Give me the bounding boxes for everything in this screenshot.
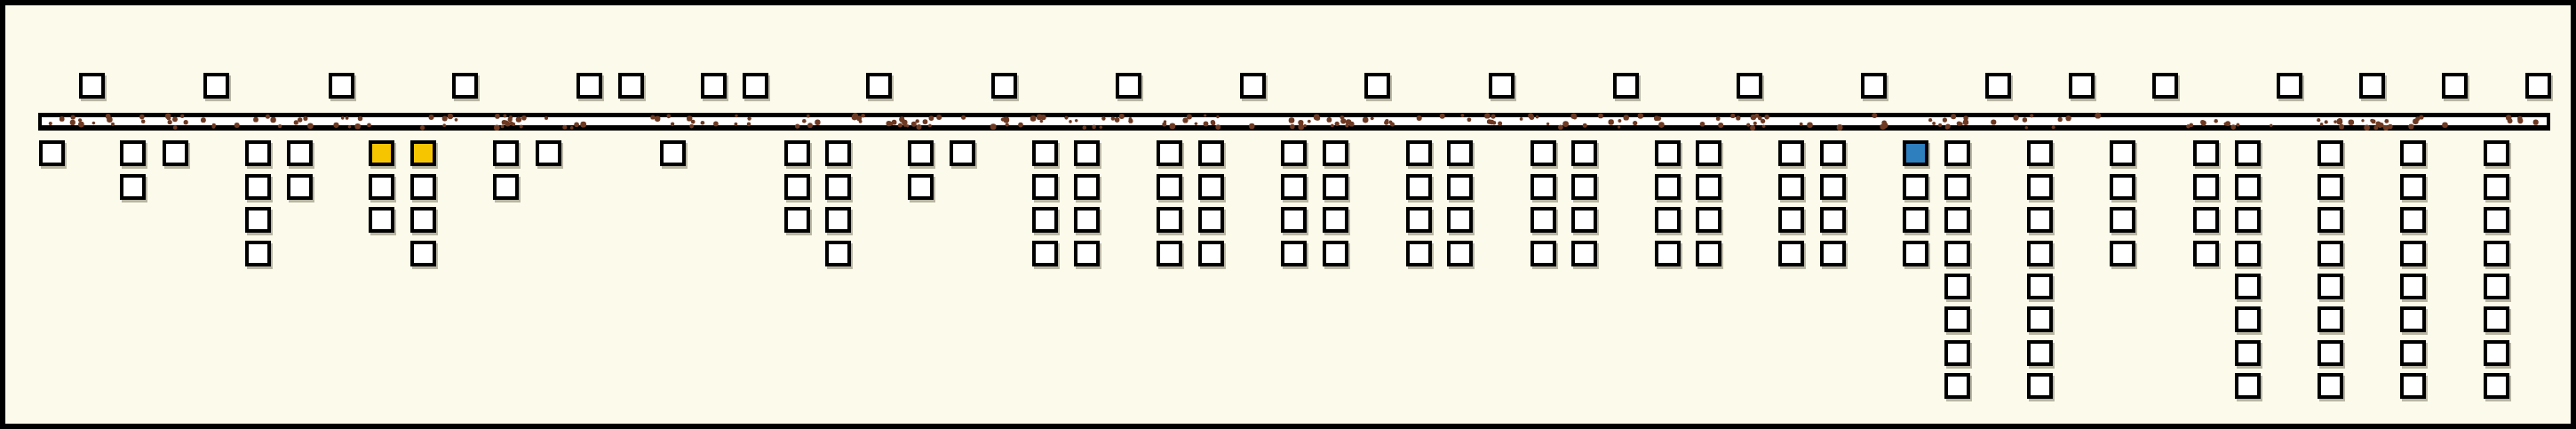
lower-box — [287, 174, 313, 200]
upper-box — [2525, 73, 2551, 99]
lower-box — [245, 207, 271, 233]
highlighted-yellow-box — [410, 140, 436, 166]
lower-box — [1903, 174, 1928, 200]
upper-box — [1240, 73, 1266, 99]
lower-box — [825, 140, 851, 166]
lower-box — [1074, 241, 1100, 266]
lower-box — [1198, 241, 1224, 266]
lower-box — [410, 241, 436, 266]
lower-box — [1944, 306, 1970, 332]
lower-box — [2400, 340, 2426, 366]
lower-box — [1655, 241, 1681, 266]
upper-box — [701, 73, 727, 99]
lower-box — [2027, 306, 2053, 332]
lower-box — [1406, 140, 1432, 166]
lower-box — [2027, 174, 2053, 200]
lower-box — [1655, 174, 1681, 200]
lower-box — [825, 241, 851, 266]
lower-box — [410, 174, 436, 200]
upper-box — [2069, 73, 2095, 99]
lower-box — [2318, 340, 2343, 366]
lower-box — [2235, 340, 2261, 366]
upper-box — [1364, 73, 1390, 99]
lower-box — [2484, 174, 2509, 200]
upper-box — [576, 73, 602, 99]
lower-box — [287, 140, 313, 166]
lower-box — [120, 140, 146, 166]
lower-box — [39, 140, 65, 166]
lower-box — [410, 207, 436, 233]
lower-box — [2318, 241, 2343, 266]
lower-box — [369, 207, 394, 233]
lower-box — [2484, 207, 2509, 233]
lower-box — [1944, 340, 1970, 366]
lower-box — [1696, 140, 1721, 166]
upper-box — [1489, 73, 1515, 99]
lower-box — [2027, 340, 2053, 366]
lower-box — [2235, 373, 2261, 399]
upper-box — [452, 73, 478, 99]
lower-box — [369, 174, 394, 200]
lower-box — [1820, 174, 1846, 200]
upper-box — [2277, 73, 2302, 99]
lower-box — [784, 207, 810, 233]
lower-box — [2027, 207, 2053, 233]
lower-box — [2235, 207, 2261, 233]
lower-box — [1074, 207, 1100, 233]
lower-box — [2110, 241, 2135, 266]
lower-box — [2484, 373, 2509, 399]
lower-box — [1944, 140, 1970, 166]
lower-box — [1157, 140, 1182, 166]
upper-box — [2152, 73, 2178, 99]
lower-box — [1323, 207, 1348, 233]
upper-box — [743, 73, 768, 99]
lower-box — [1944, 241, 1970, 266]
upper-box — [2359, 73, 2385, 99]
lower-box — [784, 140, 810, 166]
lower-box — [1696, 207, 1721, 233]
upper-box — [1737, 73, 1762, 99]
lower-box — [2193, 241, 2219, 266]
lower-box — [245, 174, 271, 200]
upper-box — [866, 73, 892, 99]
lower-box — [120, 174, 146, 200]
lower-box — [2235, 241, 2261, 266]
lower-box — [2235, 140, 2261, 166]
lower-box — [2193, 140, 2219, 166]
lower-box — [1655, 207, 1681, 233]
lower-box — [2235, 274, 2261, 299]
upper-box — [329, 73, 354, 99]
lower-box — [2110, 207, 2135, 233]
lower-box — [2110, 174, 2135, 200]
upper-box — [991, 73, 1017, 99]
lower-box — [2400, 207, 2426, 233]
lower-box — [660, 140, 686, 166]
highlighted-yellow-box — [369, 140, 394, 166]
lower-box — [493, 140, 519, 166]
lower-box — [536, 140, 561, 166]
lower-box — [1198, 140, 1224, 166]
lower-box — [825, 174, 851, 200]
lower-box — [1571, 174, 1597, 200]
lower-box — [825, 207, 851, 233]
lower-box — [2484, 340, 2509, 366]
lower-box — [2400, 241, 2426, 266]
lower-box — [1696, 241, 1721, 266]
figure-canvas — [0, 0, 2576, 429]
lower-box — [1778, 241, 1804, 266]
highlighted-blue-box — [1903, 140, 1928, 166]
lower-box — [1406, 174, 1432, 200]
lower-box — [2235, 306, 2261, 332]
lower-box — [1778, 140, 1804, 166]
lower-box — [2318, 207, 2343, 233]
lower-box — [2193, 207, 2219, 233]
lower-box — [245, 140, 271, 166]
lower-box — [2318, 306, 2343, 332]
lower-box — [2484, 140, 2509, 166]
upper-box — [618, 73, 644, 99]
upper-box — [1861, 73, 1887, 99]
lower-box — [1571, 140, 1597, 166]
lower-box — [1944, 373, 1970, 399]
lower-box — [908, 174, 934, 200]
lower-box — [2027, 241, 2053, 266]
lower-box — [1820, 140, 1846, 166]
lower-box — [1157, 241, 1182, 266]
lower-box — [493, 174, 519, 200]
lower-box — [1696, 174, 1721, 200]
lower-box — [1903, 207, 1928, 233]
lower-box — [1032, 207, 1058, 233]
lower-box — [1447, 174, 1473, 200]
lower-box — [2027, 373, 2053, 399]
lower-box — [1323, 241, 1348, 266]
lower-box — [1157, 174, 1182, 200]
lower-box — [2484, 274, 2509, 299]
lower-box — [1778, 174, 1804, 200]
lower-box — [1281, 174, 1307, 200]
lower-box — [1447, 241, 1473, 266]
upper-box — [79, 73, 105, 99]
lower-box — [1074, 174, 1100, 200]
lower-box — [1820, 207, 1846, 233]
lower-box — [1903, 241, 1928, 266]
lower-box — [2400, 174, 2426, 200]
lower-box — [1323, 140, 1348, 166]
lower-box — [1530, 174, 1556, 200]
lower-box — [1447, 140, 1473, 166]
lower-box — [1655, 140, 1681, 166]
lower-box — [2027, 274, 2053, 299]
lower-box — [1530, 140, 1556, 166]
lower-box — [1530, 241, 1556, 266]
upper-box — [1116, 73, 1141, 99]
upper-box — [2442, 73, 2468, 99]
lower-box — [1074, 140, 1100, 166]
upper-box — [1613, 73, 1639, 99]
lower-box — [1944, 207, 1970, 233]
lower-box — [2484, 306, 2509, 332]
lower-box — [2484, 241, 2509, 266]
lower-box — [1032, 174, 1058, 200]
lower-box — [2318, 373, 2343, 399]
lower-box — [950, 140, 975, 166]
upper-box — [203, 73, 229, 99]
lower-box — [784, 174, 810, 200]
lower-box — [1944, 174, 1970, 200]
lower-box — [1032, 140, 1058, 166]
lower-box — [2400, 274, 2426, 299]
lower-box — [1530, 207, 1556, 233]
lower-box — [2400, 140, 2426, 166]
lower-box — [2110, 140, 2135, 166]
lower-box — [2400, 306, 2426, 332]
lower-box — [1198, 207, 1224, 233]
lower-box — [1323, 174, 1348, 200]
lower-box — [2235, 174, 2261, 200]
lower-box — [1406, 207, 1432, 233]
lower-box — [1157, 207, 1182, 233]
lower-box — [1281, 207, 1307, 233]
lower-box — [2318, 174, 2343, 200]
lower-box — [1571, 241, 1597, 266]
lower-box — [2193, 174, 2219, 200]
lower-box — [1281, 241, 1307, 266]
lower-box — [1820, 241, 1846, 266]
lower-box — [908, 140, 934, 166]
lower-box — [163, 140, 188, 166]
lower-box — [1778, 207, 1804, 233]
upper-box — [1985, 73, 2011, 99]
lower-box — [1447, 207, 1473, 233]
lower-box — [1406, 241, 1432, 266]
sequence-bar — [38, 113, 2550, 131]
lower-box — [2400, 373, 2426, 399]
lower-box — [1281, 140, 1307, 166]
lower-box — [2027, 140, 2053, 166]
lower-box — [245, 241, 271, 266]
lower-box — [1944, 274, 1970, 299]
lower-box — [1571, 207, 1597, 233]
lower-box — [2318, 140, 2343, 166]
lower-box — [1198, 174, 1224, 200]
lower-box — [2318, 274, 2343, 299]
lower-box — [1032, 241, 1058, 266]
